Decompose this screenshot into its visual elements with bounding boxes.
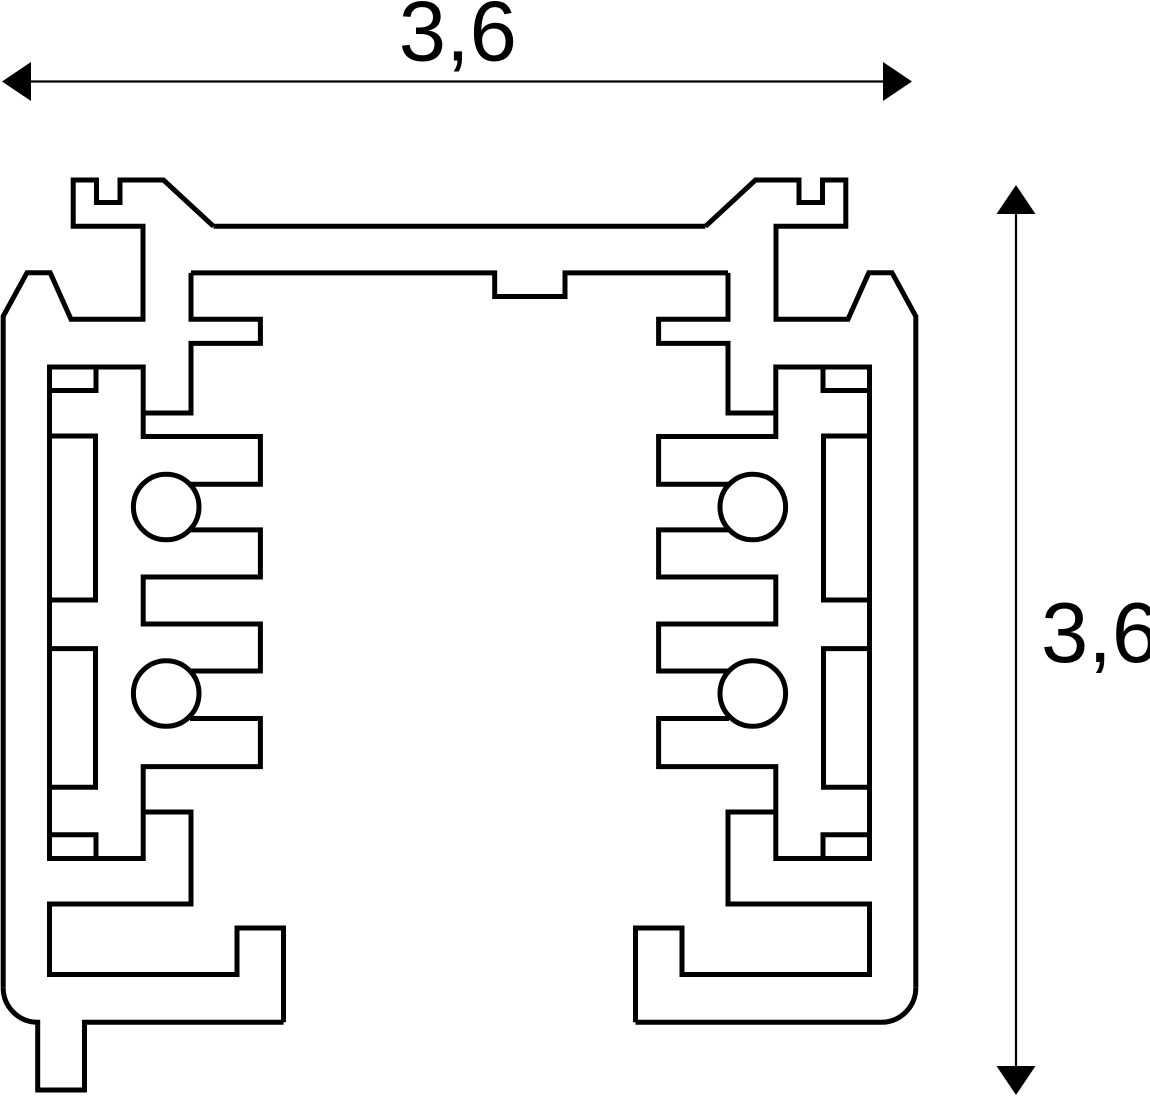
svg-text:3,6: 3,6 <box>1041 586 1150 681</box>
svg-text:3,6: 3,6 <box>399 0 517 80</box>
